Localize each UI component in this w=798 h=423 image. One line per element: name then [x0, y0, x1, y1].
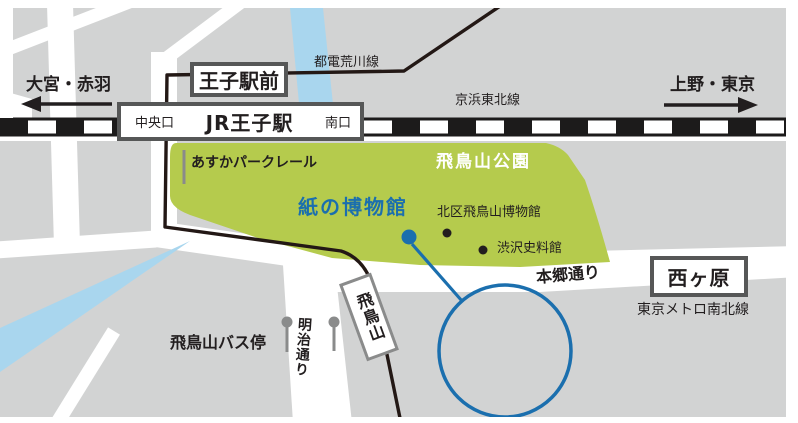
kita-museum-label: 北区飛鳥山博物館 [437, 206, 541, 220]
kita-museum-marker [443, 229, 452, 238]
margin [0, 0, 798, 8]
margin [0, 8, 13, 118]
station-oji-ekimae: 王子駅前 [190, 62, 288, 97]
direction-west-label: 大宮・赤羽 [26, 76, 111, 95]
margin [786, 0, 798, 423]
station-oji-ekimae-label: 王子駅前 [199, 65, 279, 94]
direction-east-label: 上野・東京 [670, 76, 755, 95]
access-map: 大宮・赤羽 上野・東京 都電荒川線 京浜東北線 東京メトロ南北線 あすかパークレ… [0, 0, 798, 423]
margin [0, 417, 798, 423]
station-nishigahara: 西ヶ原 [650, 256, 748, 297]
road [0, 239, 156, 250]
station-jr-oji: 中央口 JR王子駅 南口 [117, 102, 364, 141]
south-exit-label: 南口 [325, 112, 351, 131]
shibusawa-marker [479, 246, 488, 255]
shibusawa-label: 渋沢史料館 [497, 242, 562, 256]
bus-stop-pole-head [282, 317, 293, 328]
bus-stop-pole-head [329, 317, 340, 328]
park-rail-label: あすかパークレール [191, 156, 317, 171]
keihin-tohoku-line-label: 京浜東北線 [455, 94, 520, 108]
bus-stop-label: 飛鳥山バス停 [170, 334, 266, 352]
station-nishigahara-label: 西ヶ原 [668, 262, 731, 291]
paper-museum-label: 紙の博物館 [298, 196, 408, 218]
park-name-label: 飛鳥山公園 [436, 153, 531, 172]
toden-arakawa-line-label: 都電荒川線 [314, 56, 379, 70]
paper-museum-marker [402, 230, 417, 245]
namboku-line-label: 東京メトロ南北線 [637, 303, 749, 318]
station-jr-oji-label: JR王子駅 [206, 107, 294, 136]
central-exit-label: 中央口 [135, 112, 174, 131]
